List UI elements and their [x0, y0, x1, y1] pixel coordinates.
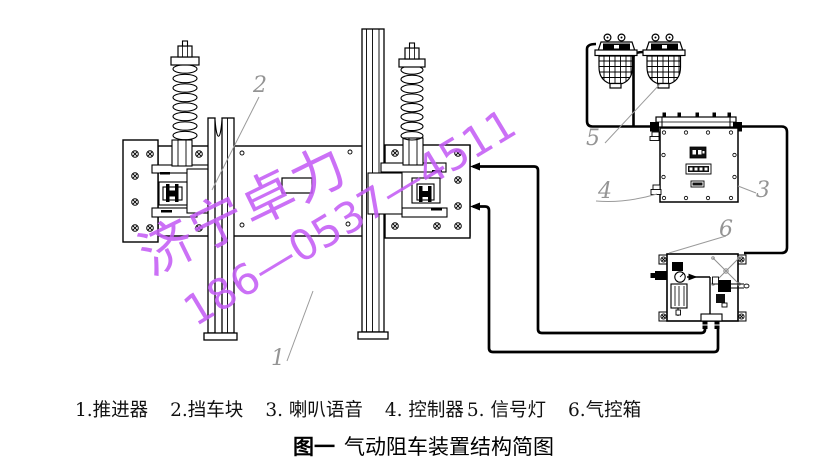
plate-slot — [282, 178, 312, 193]
port-arrow-upper — [470, 163, 480, 171]
inlet-knob — [655, 271, 667, 280]
air-control-box — [651, 254, 750, 329]
legend-item-4: 4. 控制器 — [385, 400, 464, 421]
parts-legend: 1.推进器2.挡车块3. 喇叭语音4. 控制器5. 信号灯6.气控箱 — [75, 396, 815, 422]
control-box — [650, 113, 742, 203]
outlet-manifold — [701, 314, 722, 321]
figure-caption: 图一气动阻车装置结构简图 — [293, 431, 554, 461]
callout-4: 4 — [597, 179, 612, 204]
legend-item-3: 3. 喇叭语音 — [265, 400, 363, 421]
callout-5: 5 — [586, 126, 600, 151]
signal-lamp-right — [643, 34, 685, 88]
figure-caption-label: 图一 — [293, 434, 335, 459]
callout-2: 2 — [252, 73, 267, 98]
signal-lamp-left — [595, 34, 637, 88]
figure-caption-title: 气动阻车装置结构简图 — [344, 435, 554, 459]
wire-lamp-right — [634, 52, 645, 127]
left-pusher-mechanism — [152, 165, 212, 217]
legend-item-1: 1.推进器 — [75, 400, 148, 421]
right-rail-foot — [358, 332, 388, 339]
cable-gland-left — [650, 122, 659, 132]
legend-item-2: 2.挡车块 — [170, 400, 243, 421]
leader-6 — [669, 236, 726, 253]
legend-item-5: 5. 信号灯 — [467, 400, 546, 421]
signal-lamps — [595, 34, 685, 88]
figure-canvas: 1 2 3 4 5 6 济宁卓力 186—0537—4511 1.推进器2.挡车… — [0, 0, 820, 465]
callout-6: 6 — [719, 217, 733, 242]
left-spring-coil — [173, 65, 197, 140]
leader-1 — [287, 291, 313, 361]
legend-item-6: 6.气控箱 — [568, 400, 641, 421]
right-spring-coil — [401, 66, 423, 140]
right-spring-tower — [399, 43, 425, 165]
leader-3 — [738, 186, 756, 193]
callout-1: 1 — [271, 346, 285, 371]
port-arrow-lower — [470, 203, 480, 211]
callout-3: 3 — [756, 178, 770, 203]
left-rail-foot — [204, 333, 237, 340]
